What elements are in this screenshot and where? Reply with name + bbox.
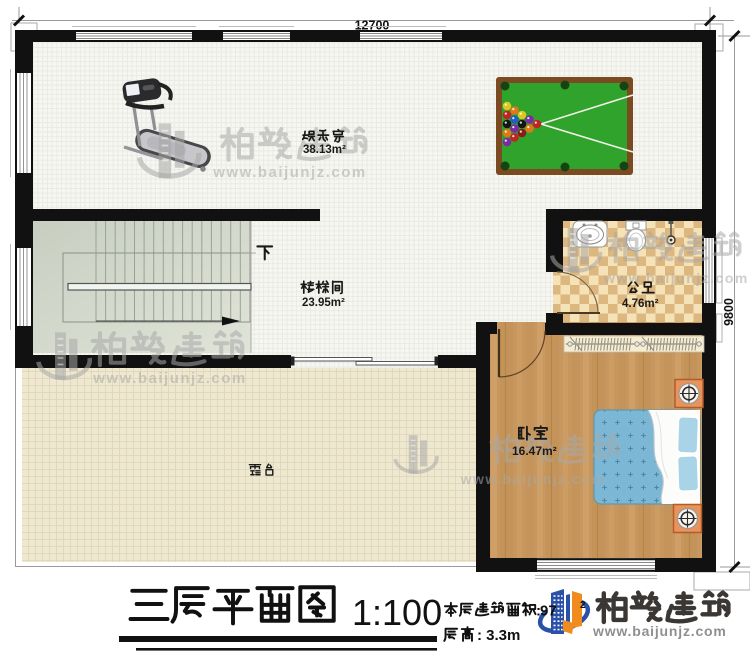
- svg-text:www.baijunjz.com: www.baijunjz.com: [603, 270, 749, 286]
- svg-text:16.47m²: 16.47m²: [512, 444, 557, 458]
- svg-text:www.baijunjz.com: www.baijunjz.com: [592, 623, 727, 639]
- svg-text:www.baijunjz.com: www.baijunjz.com: [92, 370, 246, 387]
- svg-text:www.baijunjz.com: www.baijunjz.com: [212, 164, 366, 181]
- svg-text:4.76m²: 4.76m²: [622, 298, 659, 310]
- svg-text:9800: 9800: [722, 298, 736, 326]
- svg-text:38.13m²: 38.13m²: [303, 144, 346, 156]
- svg-text:97: 97: [540, 603, 557, 620]
- svg-text:1:100: 1:100: [352, 592, 442, 633]
- svg-text:: 3.3m: : 3.3m: [477, 627, 520, 644]
- svg-text:2: 2: [580, 600, 586, 611]
- svg-text:www.baijunjz.com: www.baijunjz.com: [460, 471, 606, 487]
- svg-text:23.95m²: 23.95m²: [302, 297, 345, 309]
